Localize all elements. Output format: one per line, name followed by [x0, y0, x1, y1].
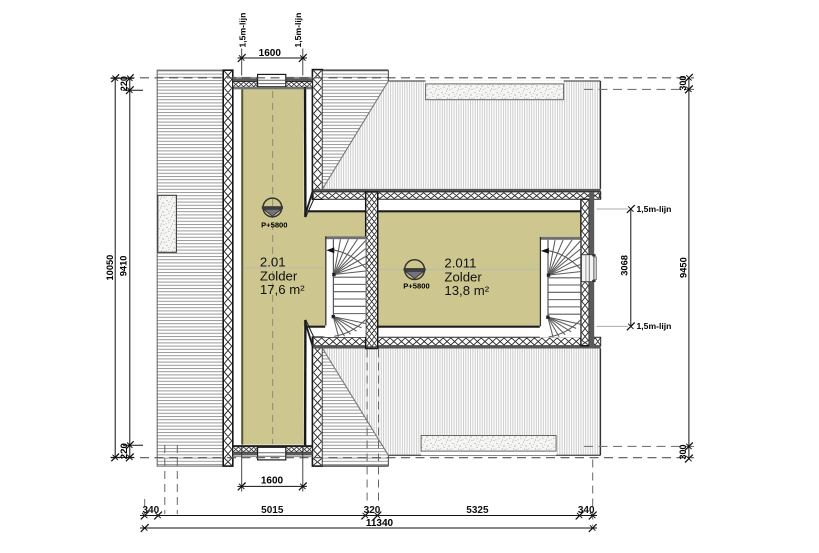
svg-text:13,8 m²: 13,8 m²	[444, 283, 489, 298]
svg-text:3068: 3068	[619, 255, 629, 276]
svg-text:2.01: 2.01	[260, 255, 286, 270]
svg-text:220: 220	[119, 76, 129, 91]
svg-text:340: 340	[142, 505, 159, 516]
svg-text:P+5800: P+5800	[403, 281, 429, 290]
svg-text:11340: 11340	[366, 518, 394, 529]
svg-text:300: 300	[678, 76, 688, 91]
svg-text:P+5800: P+5800	[261, 220, 287, 229]
svg-text:Zolder: Zolder	[260, 268, 298, 283]
svg-text:1,5m-lijn: 1,5m-lijn	[293, 13, 303, 48]
svg-text:9410: 9410	[119, 256, 129, 277]
svg-text:5015: 5015	[261, 505, 284, 516]
svg-text:5325: 5325	[466, 505, 489, 516]
svg-text:320: 320	[364, 505, 381, 516]
svg-text:1,5m-lijn: 1,5m-lijn	[637, 321, 672, 331]
svg-text:220: 220	[119, 443, 130, 459]
svg-text:1,5m-lijn: 1,5m-lijn	[237, 13, 247, 48]
svg-text:1,5m-lijn: 1,5m-lijn	[637, 204, 672, 214]
svg-text:1600: 1600	[261, 475, 284, 486]
svg-text:17,6 m²: 17,6 m²	[260, 282, 305, 297]
svg-text:9450: 9450	[679, 257, 689, 278]
svg-text:340: 340	[578, 505, 595, 516]
svg-text:300: 300	[678, 444, 688, 459]
svg-text:10050: 10050	[105, 255, 115, 281]
svg-text:1600: 1600	[259, 48, 282, 59]
